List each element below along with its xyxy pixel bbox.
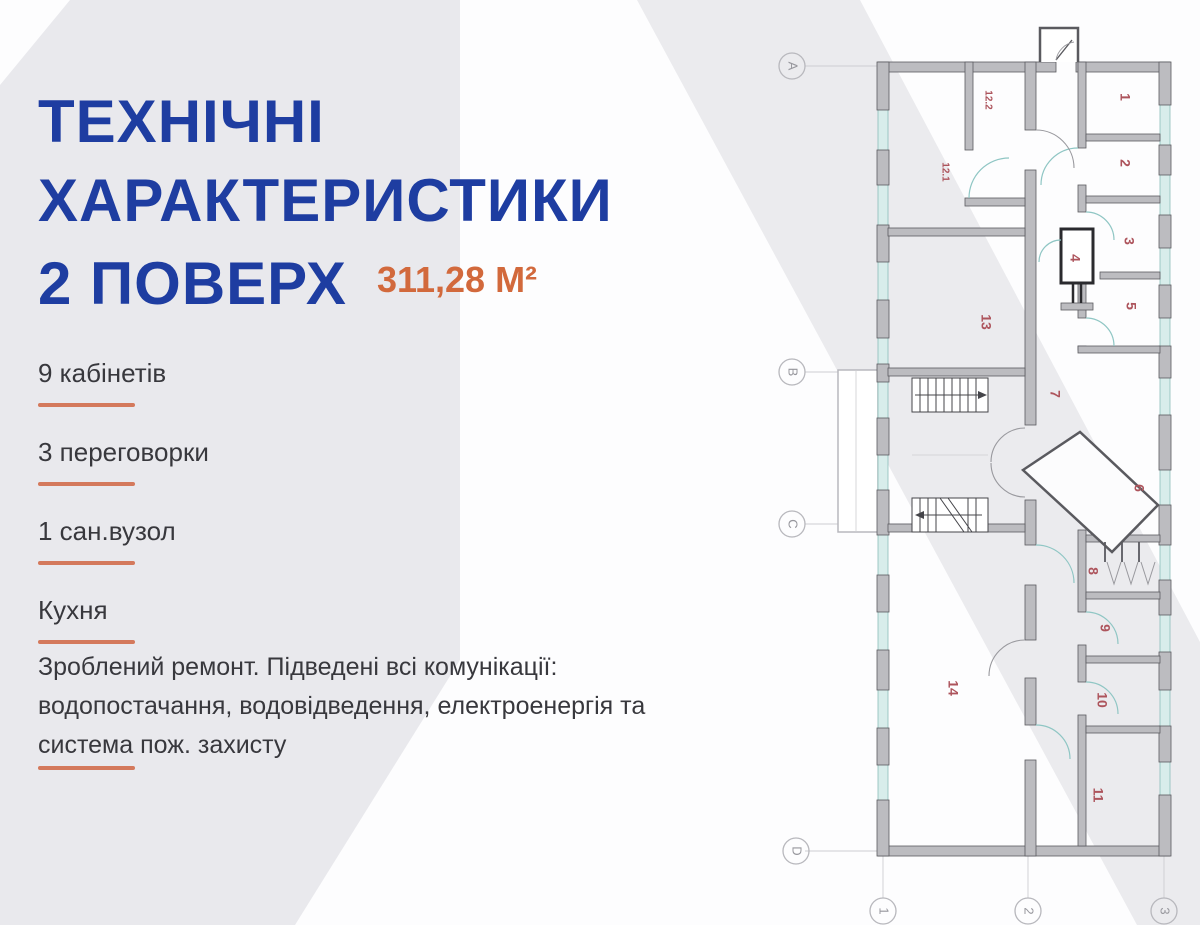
feature-label: 9 кабінетів: [38, 358, 598, 389]
room-number-12.1: 12.1: [939, 162, 950, 182]
room-number-3: 3: [1121, 237, 1137, 245]
door-arcs: [969, 130, 1118, 759]
entry-vestibule: [1040, 28, 1078, 62]
feature-item-1: 3 переговорки: [38, 437, 598, 486]
room-number-9: 9: [1097, 624, 1113, 632]
exterior-landing: [838, 370, 878, 532]
svg-text:B: B: [786, 368, 801, 377]
feature-label: Кухня: [38, 595, 598, 626]
grid-bubble-A: A: [779, 53, 805, 79]
features-list: 9 кабінетів3 переговорки1 сан.вузолКухня: [38, 358, 598, 674]
interior-walls: [888, 62, 1160, 856]
shaft-room-4: [1061, 229, 1093, 303]
outer-walls: [877, 62, 1171, 856]
title-line-3: 2 ПОВЕРХ311,28 М²: [38, 240, 738, 323]
feature-label: 1 сан.вузол: [38, 516, 598, 547]
staircase: [912, 378, 988, 532]
grid-bubble-B: B: [779, 359, 805, 385]
feature-label: 3 переговорки: [38, 437, 598, 468]
svg-text:2: 2: [1022, 907, 1037, 914]
grid-bubble-3: 3: [1151, 898, 1177, 924]
room-number-4: 4: [1067, 254, 1083, 262]
info-panel: ТЕХНІЧНІ ХАРАКТЕРИСТИКИ 2 ПОВЕРХ311,28 М…: [0, 0, 760, 925]
description-underline: [38, 766, 135, 770]
floor-plan: 123456789101112.212.11314 ABCD123: [760, 0, 1200, 925]
feature-underline: [38, 640, 135, 644]
grid-bubble-C: C: [779, 511, 805, 537]
room-number-11: 11: [1090, 788, 1106, 803]
room-number-12.2: 12.2: [982, 90, 993, 110]
feature-underline: [38, 403, 135, 407]
grid-bubble-2: 2: [1015, 898, 1041, 924]
page-title: ТЕХНІЧНІ ХАРАКТЕРИСТИКИ 2 ПОВЕРХ311,28 М…: [38, 82, 738, 323]
total-area-value: 311,28 М²: [377, 259, 537, 300]
room-number-14: 14: [945, 680, 961, 696]
room-number-10: 10: [1094, 692, 1110, 708]
room-number-1: 1: [1117, 93, 1133, 101]
poster: ТЕХНІЧНІ ХАРАКТЕРИСТИКИ 2 ПОВЕРХ311,28 М…: [0, 0, 1200, 925]
room-number-13: 13: [978, 314, 994, 330]
room-number-2: 2: [1117, 159, 1133, 167]
room-number-7: 7: [1047, 390, 1063, 398]
room-number-5: 5: [1123, 302, 1139, 310]
grid-bubble-D: D: [783, 838, 809, 864]
feature-underline: [38, 482, 135, 486]
feature-underline: [38, 561, 135, 565]
description-text: Зроблений ремонт. Підведені всі комуніка…: [38, 648, 678, 765]
svg-text:3: 3: [1158, 907, 1173, 914]
title-line-2: ХАРАКТЕРИСТИКИ: [38, 161, 738, 240]
title-floor-label: 2 ПОВЕРХ: [38, 250, 347, 317]
feature-item-2: 1 сан.вузол: [38, 516, 598, 565]
room-6-walls: [1023, 432, 1158, 552]
svg-text:C: C: [786, 519, 801, 528]
feature-item-3: Кухня: [38, 595, 598, 644]
grid-bubble-1: 1: [870, 898, 896, 924]
svg-text:D: D: [790, 846, 805, 855]
room-number-8: 8: [1085, 567, 1101, 575]
svg-text:1: 1: [877, 907, 892, 914]
title-line-1: ТЕХНІЧНІ: [38, 82, 738, 161]
room-number-6: 6: [1131, 484, 1147, 492]
svg-text:A: A: [786, 62, 801, 71]
window-strips: [878, 62, 1170, 856]
feature-item-0: 9 кабінетів: [38, 358, 598, 407]
